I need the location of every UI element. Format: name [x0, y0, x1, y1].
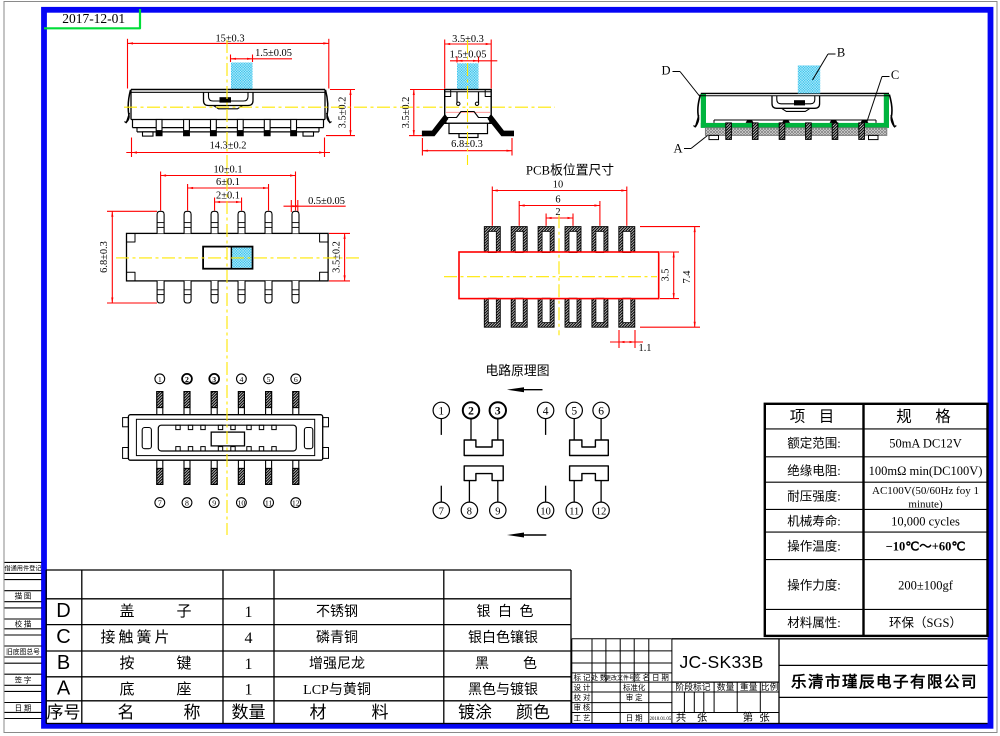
- svg-text:材料属性:: 材料属性:: [787, 616, 840, 630]
- svg-text:第: 第: [743, 711, 754, 724]
- svg-text:盖: 盖: [119, 603, 134, 620]
- svg-text:增强尼龙: 增强尼龙: [309, 656, 365, 672]
- svg-text:B: B: [57, 652, 70, 674]
- svg-text:A: A: [57, 678, 71, 700]
- svg-text:5: 5: [267, 375, 271, 384]
- svg-text:签 名: 签 名: [633, 672, 650, 682]
- svg-text:绝缘电阻:: 绝缘电阻:: [787, 463, 840, 478]
- svg-text:10,000 cycles: 10,000 cycles: [891, 515, 960, 529]
- svg-text:0.5±0.05: 0.5±0.05: [308, 196, 345, 207]
- svg-text:不锈钢: 不锈钢: [316, 604, 358, 620]
- svg-text:12: 12: [292, 499, 300, 508]
- svg-text:9: 9: [212, 499, 216, 508]
- svg-text:张: 张: [759, 712, 770, 724]
- svg-text:黑: 黑: [475, 657, 489, 672]
- svg-text:D: D: [661, 64, 670, 78]
- svg-text:触: 触: [118, 629, 133, 646]
- svg-text:1: 1: [245, 656, 253, 673]
- svg-text:15±0.3: 15±0.3: [215, 34, 244, 45]
- svg-text:键: 键: [176, 655, 191, 672]
- svg-text:借通用件登记: 借通用件登记: [4, 565, 41, 573]
- svg-text:格: 格: [935, 408, 951, 426]
- svg-text:更改文件号: 更改文件号: [605, 674, 635, 682]
- svg-text:簧: 簧: [136, 629, 151, 646]
- svg-text:签 字: 签 字: [15, 674, 32, 684]
- svg-text:料: 料: [372, 703, 389, 722]
- svg-text:电路原理图: 电路原理图: [486, 363, 550, 378]
- svg-text:−10℃～+60℃: −10℃～+60℃: [886, 540, 966, 554]
- svg-text:描 图: 描 图: [15, 591, 32, 601]
- svg-text:2: 2: [468, 406, 474, 418]
- svg-text:审 定: 审 定: [626, 692, 643, 702]
- svg-text:PCB板位置尺寸: PCB板位置尺寸: [526, 164, 614, 178]
- svg-text:2: 2: [185, 375, 189, 384]
- svg-text:操作温度:: 操作温度:: [787, 539, 840, 554]
- svg-text:日 期: 日 期: [652, 673, 669, 682]
- svg-text:磷青铜: 磷青铜: [316, 630, 358, 646]
- svg-text:minute): minute): [908, 499, 943, 511]
- svg-text:共: 共: [676, 712, 687, 724]
- svg-text:机械寿命:: 机械寿命:: [787, 514, 840, 529]
- svg-text:名: 名: [118, 703, 135, 722]
- svg-text:银白色镶银: 银白色镶银: [468, 629, 538, 646]
- svg-text:1: 1: [245, 682, 253, 699]
- svg-text:数量: 数量: [232, 703, 266, 722]
- svg-text:200±100gf: 200±100gf: [898, 579, 954, 593]
- svg-text:7: 7: [439, 507, 444, 518]
- svg-text:校 对: 校 对: [573, 692, 590, 702]
- svg-text:3: 3: [212, 375, 216, 384]
- svg-text:D: D: [56, 600, 70, 622]
- svg-text:100mΩ min(DC100V): 100mΩ min(DC100V): [869, 464, 983, 478]
- svg-text:日 期: 日 期: [626, 714, 643, 723]
- svg-text:材: 材: [310, 703, 327, 722]
- svg-text:4: 4: [245, 630, 253, 647]
- svg-text:1: 1: [158, 375, 162, 384]
- svg-text:旧底图总号: 旧底图总号: [6, 647, 40, 656]
- svg-text:10: 10: [540, 507, 550, 518]
- svg-text:B: B: [837, 46, 845, 60]
- svg-text:耐压强度:: 耐压强度:: [787, 489, 840, 504]
- svg-text:3.5±0.2: 3.5±0.2: [332, 241, 343, 273]
- svg-text:乐清市瑾辰电子有限公司: 乐清市瑾辰电子有限公司: [791, 672, 978, 691]
- svg-text:C: C: [891, 68, 899, 82]
- svg-text:6.8±0.3: 6.8±0.3: [99, 241, 110, 273]
- svg-text:3.5±0.2: 3.5±0.2: [401, 97, 412, 129]
- svg-text:50mA DC12V: 50mA DC12V: [889, 437, 962, 451]
- svg-text:3.5: 3.5: [661, 269, 672, 282]
- svg-text:2018.01.05: 2018.01.05: [650, 717, 672, 722]
- svg-text:黑色与镀银: 黑色与镀银: [468, 681, 538, 698]
- svg-text:6±0.1: 6±0.1: [216, 177, 240, 188]
- svg-text:额定范围:: 额定范围:: [787, 436, 840, 451]
- svg-text:10±0.1: 10±0.1: [213, 165, 242, 176]
- svg-text:2017-12-01: 2017-12-01: [62, 11, 125, 26]
- svg-text:镀涂: 镀涂: [458, 703, 492, 722]
- svg-text:日 期: 日 期: [15, 703, 32, 712]
- svg-text:项: 项: [790, 409, 806, 426]
- svg-text:10: 10: [553, 180, 563, 191]
- svg-text:2±0.1: 2±0.1: [216, 191, 240, 202]
- svg-text:接: 接: [100, 629, 115, 646]
- svg-text:6: 6: [294, 375, 298, 384]
- svg-text:1.5±0.05: 1.5±0.05: [255, 48, 292, 59]
- svg-text:3.5±0.2: 3.5±0.2: [338, 97, 349, 129]
- svg-text:颜色: 颜色: [516, 703, 550, 722]
- svg-text:数量: 数量: [717, 681, 735, 692]
- svg-text:2: 2: [555, 207, 560, 218]
- svg-text:11: 11: [569, 507, 579, 518]
- svg-text:片: 片: [154, 629, 169, 646]
- svg-text:规: 规: [896, 408, 912, 426]
- svg-text:1: 1: [438, 406, 444, 418]
- svg-text:标准化: 标准化: [623, 682, 646, 692]
- svg-text:A: A: [673, 142, 682, 156]
- svg-text:7.4: 7.4: [682, 270, 693, 284]
- svg-text:12: 12: [596, 507, 606, 518]
- svg-text:14.3±0.2: 14.3±0.2: [210, 141, 247, 152]
- svg-text:10: 10: [238, 499, 246, 508]
- svg-text:标 记: 标 记: [573, 672, 590, 682]
- svg-text:称: 称: [184, 703, 201, 722]
- svg-text:5: 5: [571, 406, 577, 418]
- svg-text:校 描: 校 描: [15, 619, 32, 629]
- svg-text:JC-SK33B: JC-SK33B: [679, 652, 763, 672]
- svg-text:底: 底: [119, 681, 134, 698]
- svg-text:环保（SGS）: 环保（SGS）: [889, 616, 962, 630]
- svg-text:6: 6: [598, 406, 604, 418]
- svg-text:色: 色: [523, 655, 537, 672]
- svg-text:3: 3: [495, 406, 501, 418]
- svg-text:4: 4: [543, 406, 549, 418]
- svg-text:AC100V(50/60Hz foy 1: AC100V(50/60Hz foy 1: [872, 485, 979, 497]
- svg-text:8: 8: [467, 507, 472, 518]
- svg-text:阶段标记: 阶段标记: [675, 681, 710, 692]
- svg-text:设 计: 设 计: [573, 682, 590, 692]
- svg-text:座: 座: [176, 681, 191, 698]
- svg-text:LCP与黄铜: LCP与黄铜: [303, 681, 371, 698]
- svg-text:11: 11: [265, 499, 273, 508]
- svg-text:操作力度:: 操作力度:: [787, 578, 840, 593]
- svg-text:目: 目: [819, 409, 835, 426]
- svg-text:工 艺: 工 艺: [573, 714, 590, 723]
- svg-text:7: 7: [158, 499, 162, 508]
- svg-text:1.1: 1.1: [639, 343, 652, 354]
- svg-text:4: 4: [239, 375, 243, 384]
- svg-text:C: C: [56, 626, 70, 648]
- svg-text:按: 按: [119, 655, 134, 672]
- svg-text:比例: 比例: [761, 681, 779, 692]
- svg-text:1: 1: [245, 604, 253, 621]
- svg-text:序号: 序号: [47, 703, 81, 722]
- svg-text:重量: 重量: [740, 681, 758, 692]
- svg-text:审 核: 审 核: [573, 702, 590, 712]
- svg-text:8: 8: [185, 499, 189, 508]
- svg-text:张: 张: [697, 712, 708, 724]
- svg-text:银 白 色: 银 白 色: [477, 603, 536, 620]
- svg-text:6: 6: [555, 195, 560, 206]
- svg-text:子: 子: [176, 603, 191, 620]
- svg-text:9: 9: [495, 507, 500, 518]
